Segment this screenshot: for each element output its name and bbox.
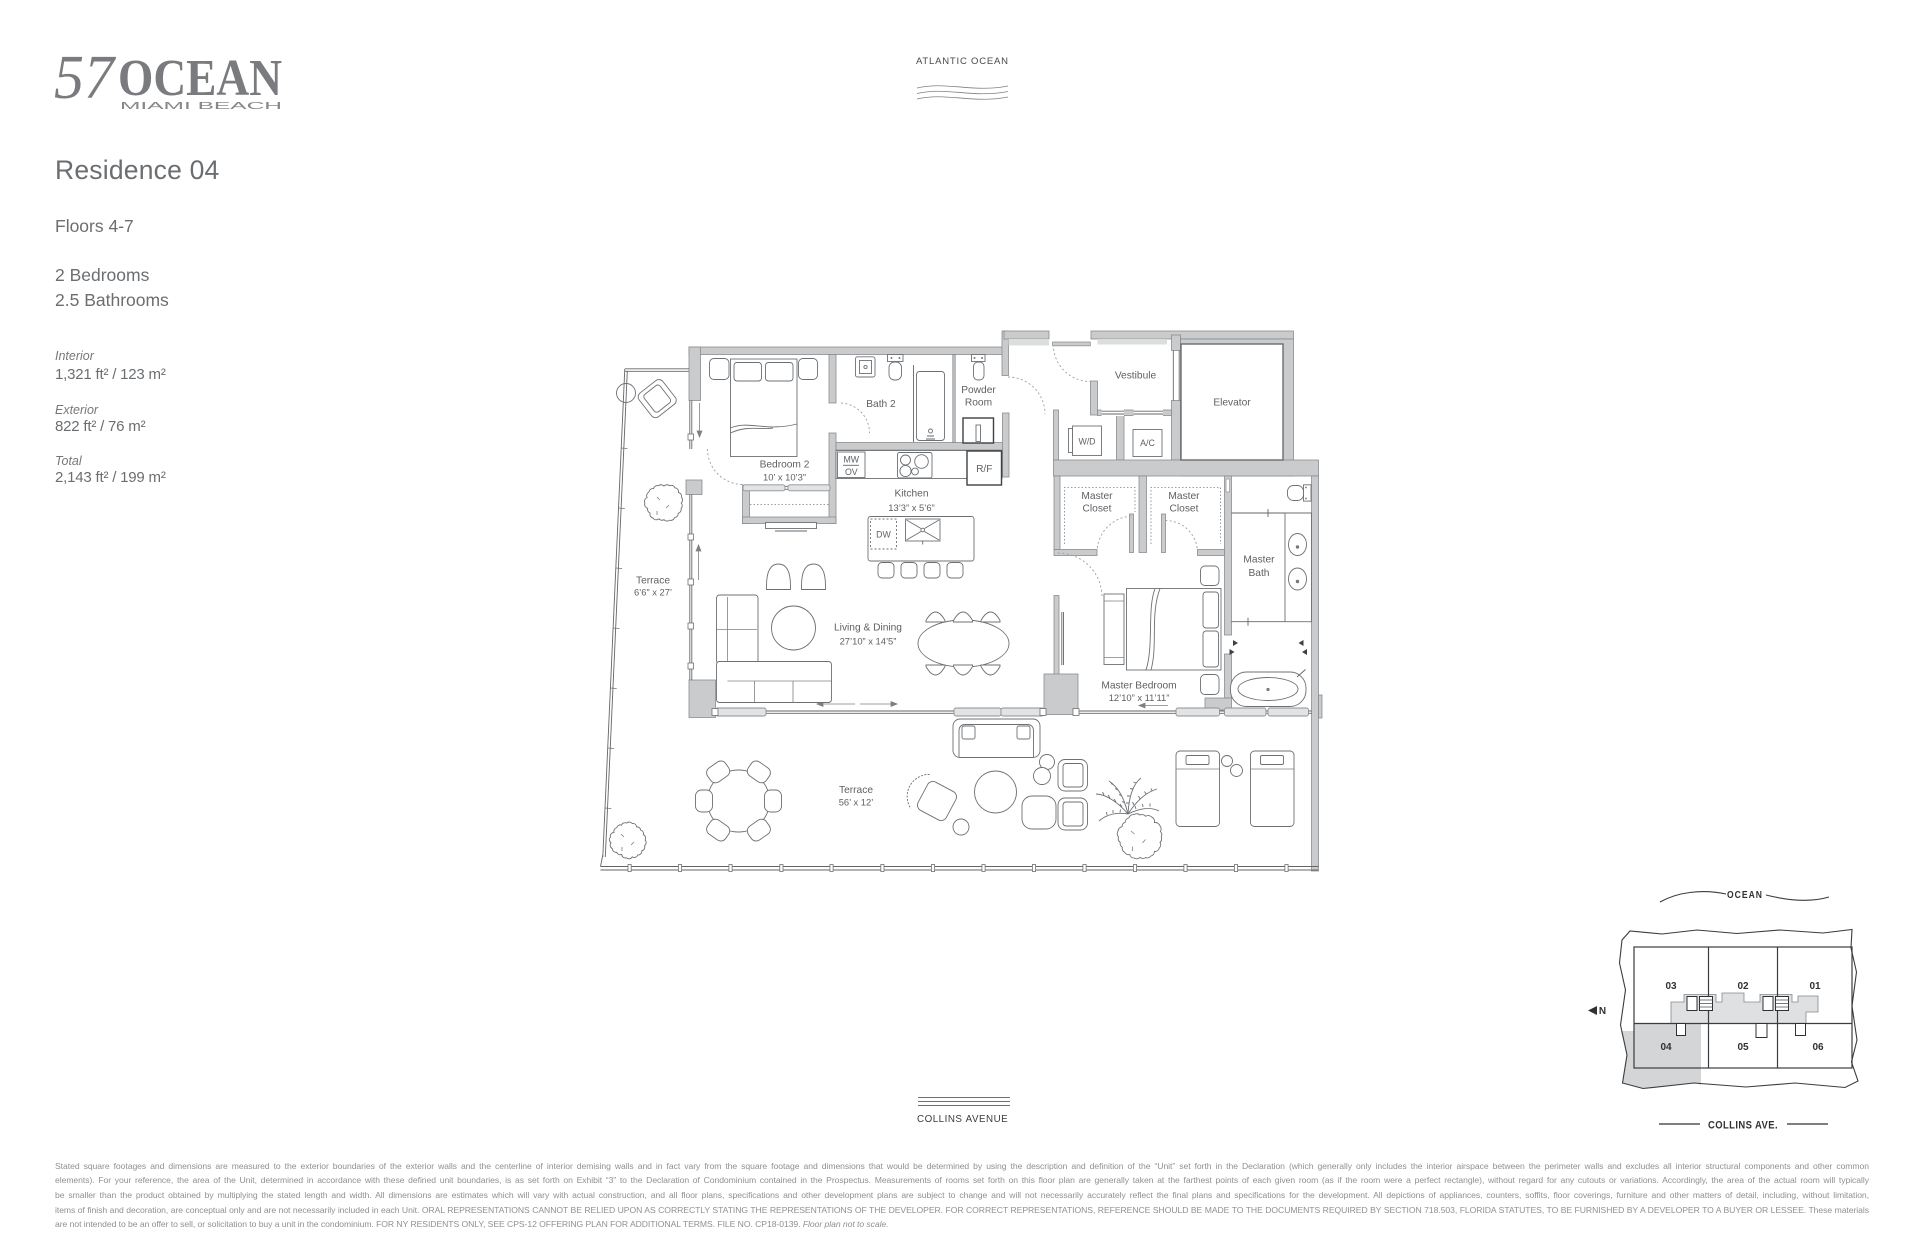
svg-text:Master: Master	[1243, 555, 1275, 566]
svg-text:Terrace: Terrace	[839, 785, 873, 796]
svg-text:Room: Room	[965, 398, 992, 409]
svg-text:W/D: W/D	[1078, 437, 1095, 447]
svg-text:Living & Dining: Living & Dining	[834, 623, 902, 634]
svg-text:Vestibule: Vestibule	[1115, 371, 1157, 382]
svg-text:02: 02	[1737, 981, 1749, 992]
svg-text:MW: MW	[843, 455, 859, 465]
svg-text:Master: Master	[1168, 491, 1200, 502]
svg-text:03: 03	[1665, 981, 1677, 992]
svg-text:OCEAN: OCEAN	[1727, 890, 1763, 901]
svg-text:N: N	[1599, 1006, 1606, 1017]
svg-text:Master: Master	[1081, 491, 1113, 502]
svg-text:27’10” x 14’5”: 27’10” x 14’5”	[840, 636, 897, 647]
svg-text:COLLINS AVE.: COLLINS AVE.	[1708, 1120, 1778, 1132]
svg-text:A/C: A/C	[1140, 438, 1155, 448]
svg-text:13’3” x 5’6”: 13’3” x 5’6”	[888, 502, 934, 513]
svg-text:Closet: Closet	[1170, 504, 1199, 515]
svg-text:12’10” x 11’11”: 12’10” x 11’11”	[1109, 692, 1170, 703]
svg-text:Bath: Bath	[1249, 568, 1270, 579]
svg-text:05: 05	[1737, 1042, 1749, 1053]
svg-text:Powder: Powder	[961, 385, 996, 396]
svg-text:10’ x 10’3”: 10’ x 10’3”	[763, 472, 806, 483]
svg-text:06: 06	[1812, 1042, 1824, 1053]
svg-text:Elevator: Elevator	[1213, 398, 1251, 409]
svg-text:01: 01	[1809, 981, 1821, 992]
svg-text:56’ x 12’: 56’ x 12’	[839, 797, 874, 808]
svg-text:R/F: R/F	[976, 464, 992, 475]
svg-text:DW: DW	[876, 530, 891, 540]
svg-text:04: 04	[1660, 1042, 1672, 1053]
svg-text:Bath 2: Bath 2	[866, 399, 896, 410]
svg-text:Closet: Closet	[1083, 504, 1112, 515]
svg-text:Bedroom 2: Bedroom 2	[760, 460, 810, 471]
svg-text:6’6” x 27’: 6’6” x 27’	[634, 587, 672, 598]
svg-text:Terrace: Terrace	[636, 576, 670, 587]
svg-text:OV: OV	[845, 467, 858, 477]
svg-text:Master Bedroom: Master Bedroom	[1101, 681, 1176, 692]
svg-text:Kitchen: Kitchen	[895, 489, 929, 500]
